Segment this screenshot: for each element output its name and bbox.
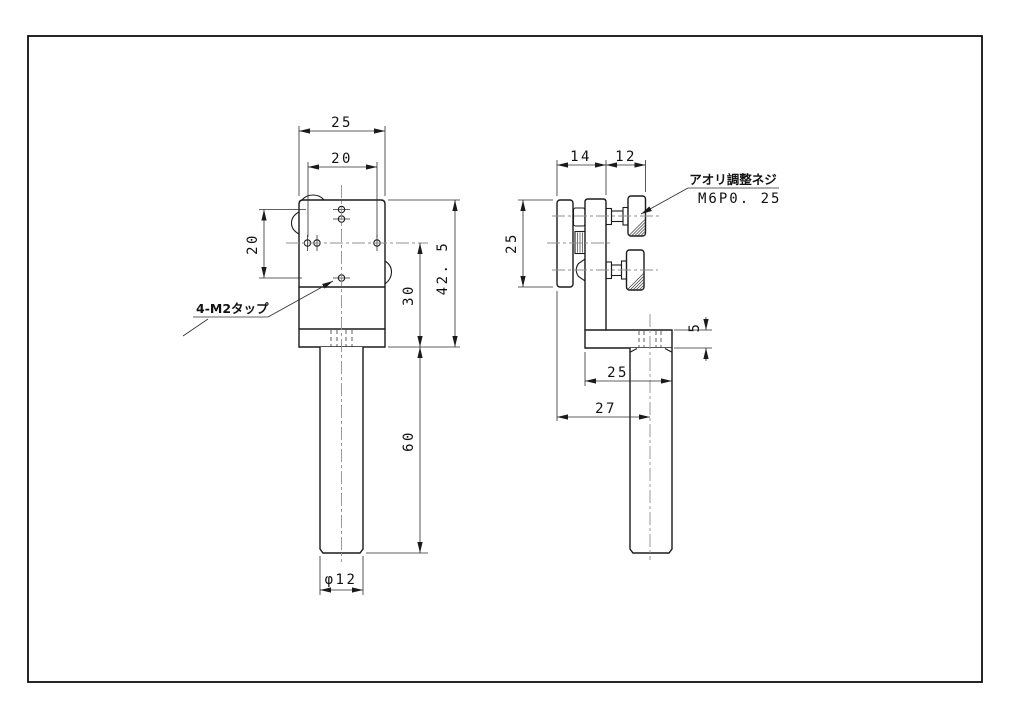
dim-side-knob-length: 12 bbox=[615, 149, 637, 165]
dim-front-shaft-diameter: φ12 bbox=[325, 572, 358, 588]
dim-front-shaft-length: 60 bbox=[401, 430, 417, 452]
dim-front-hole-pitch-v: 20 bbox=[245, 233, 261, 255]
technical-drawing: 25 20 20 30 bbox=[0, 0, 1024, 724]
sheet-border bbox=[28, 36, 982, 682]
dim-side-plate-height: 25 bbox=[504, 232, 520, 254]
dim-side-base-depth: 25 bbox=[607, 365, 629, 381]
label-tap-holes: 4-M2タップ bbox=[196, 301, 269, 316]
dim-front-hole-pitch-h: 20 bbox=[331, 151, 353, 167]
side-tilt-plate bbox=[557, 200, 573, 287]
dim-side-body-depth: 14 bbox=[570, 149, 592, 165]
dim-side-total-depth: 27 bbox=[595, 401, 617, 417]
dim-front-body-height: 30 bbox=[401, 284, 417, 306]
dim-side-base-thickness: 5 bbox=[687, 322, 703, 333]
label-screw-spec: M6P0. 25 bbox=[698, 191, 781, 207]
dim-front-total-height: 42. 5 bbox=[435, 241, 451, 296]
label-adjust-screw: アオリ調整ネジ bbox=[689, 172, 777, 187]
side-shaft bbox=[630, 348, 672, 553]
dim-front-outer-width: 25 bbox=[331, 115, 353, 131]
